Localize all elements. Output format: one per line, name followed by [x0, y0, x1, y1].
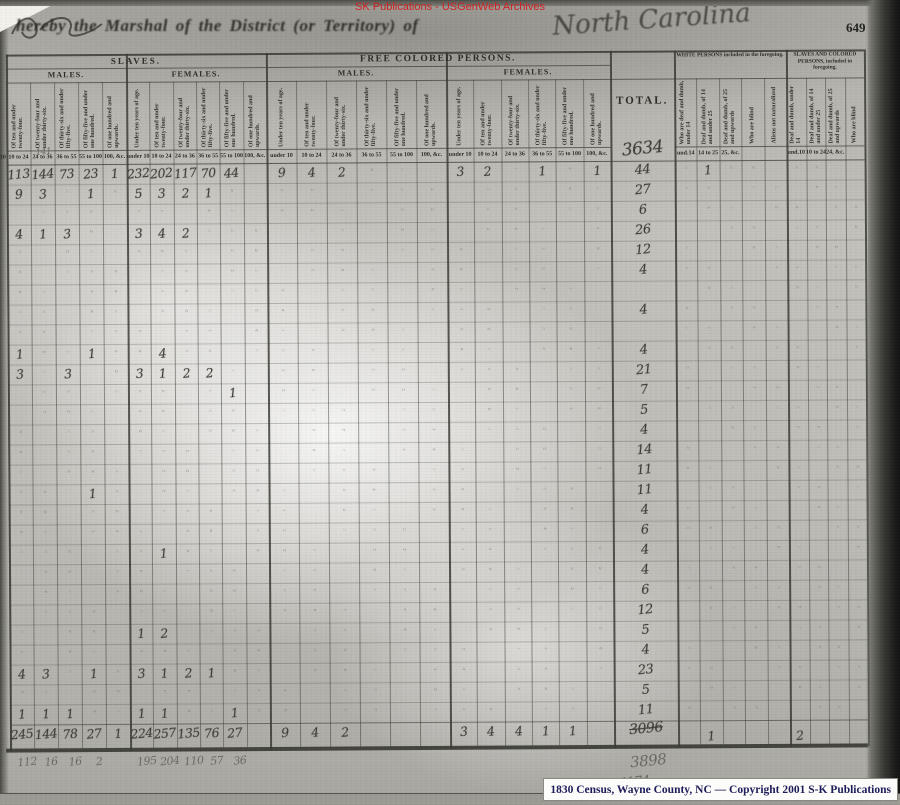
- cell-value: 3: [129, 663, 154, 685]
- column-label-text: Of fifty-five and under one hundred.: [562, 81, 576, 145]
- cell-value: 2: [326, 161, 358, 184]
- ditto-mark: ": [743, 698, 769, 722]
- column-total-value: 245: [9, 723, 35, 745]
- cell-value: 3: [7, 363, 33, 385]
- ditto-mark: ": [556, 399, 587, 424]
- ditto-mark: ": [675, 578, 701, 602]
- ditto-mark: ": [195, 221, 222, 245]
- credit-text: 1830 Census, Wayne County, NC — Copyrigh…: [550, 784, 891, 796]
- ditto-mark: ": [808, 698, 831, 722]
- ditto-mark: ": [528, 339, 559, 364]
- fc-male-column-label: Of fifty-five and under one hundred.: [387, 82, 415, 146]
- slave-female-column-label: Of fifty-five and under one hundred.: [220, 83, 242, 147]
- ditto-mark: ": [785, 218, 808, 242]
- ditto-mark: ": [764, 458, 790, 482]
- ditto-mark: ": [826, 598, 849, 622]
- column-label-text: Aliens not naturalized: [772, 87, 779, 144]
- sc-column-label: Deaf and dumb, of 14 and under 25: [807, 80, 825, 144]
- census-table: SLAVES.FREE COLORED PERSONS.MALES.FEMALE…: [0, 0, 870, 793]
- fc-female-column-label: Of thirty-six and under fifty-five.: [529, 81, 555, 145]
- cell-value: 9: [6, 183, 32, 205]
- ditto-mark: ": [719, 358, 745, 382]
- cell-value: 2: [173, 182, 198, 204]
- fc-female-column-label: Of fifty-five and under one hundred.: [556, 81, 582, 145]
- ditto-mark: ": [675, 518, 701, 542]
- column-label-text: Of one hundred and upwards.: [424, 82, 438, 146]
- ditto-mark: ": [149, 301, 176, 325]
- ditto-mark: ": [446, 359, 477, 384]
- ditto-mark: ": [741, 378, 767, 402]
- ditto-mark: ": [30, 402, 58, 426]
- column-total-value: 3: [449, 721, 478, 743]
- ditto-mark: ": [844, 338, 867, 362]
- white-age-tick: [764, 146, 786, 160]
- white-age-tick: 14 to 25: [697, 146, 719, 160]
- ditto-mark: ": [502, 479, 533, 504]
- slave-female-age-tick: under 10: [126, 150, 149, 164]
- slave-female-column-label: Of thirty-six and under fifty-five.: [197, 83, 219, 147]
- column-total-value: 257: [152, 723, 177, 745]
- ditto-mark: ": [447, 559, 478, 584]
- females-title: FEMALES.: [446, 67, 610, 77]
- ditto-mark: ": [79, 522, 107, 546]
- ditto-mark: ": [673, 178, 699, 202]
- column-label-text: Of one hundred and upwards.: [590, 81, 604, 145]
- sc-age-tick: [845, 145, 865, 159]
- ditto-mark: ": [557, 599, 588, 624]
- cell-value: 1: [57, 703, 83, 725]
- column-label-text: Of thirty-six and under fifty-five.: [59, 84, 73, 148]
- cell-value: 70: [196, 162, 221, 184]
- column-label-text: Of thirty-six and under fifty-five.: [201, 83, 215, 147]
- column-label-text: Under ten years of age.: [134, 89, 141, 148]
- ditto-mark: ": [474, 419, 505, 444]
- ditto-mark: ": [825, 398, 848, 422]
- slave-female-age-tick: 36 to 55: [196, 149, 219, 163]
- ditto-mark: ": [786, 278, 809, 302]
- slave-female-age-tick: 100, &c.: [243, 149, 266, 163]
- ditto-mark: ": [675, 458, 701, 482]
- slaves-colored-included-title: SLAVES AND COLORED PERSONS, included in …: [787, 51, 863, 71]
- ditto-mark: ": [529, 539, 560, 564]
- cell-value: 232: [126, 163, 151, 185]
- ditto-mark: ": [765, 598, 791, 622]
- fc-female-column-label: Under ten years of age.: [447, 82, 473, 146]
- sc-column-label: Deaf and dumb, under 14: [787, 80, 805, 144]
- ditto-mark: ": [804, 178, 827, 202]
- ditto-mark: ": [807, 638, 830, 662]
- column-total-value: 2: [329, 721, 361, 744]
- ditto-mark: ": [718, 298, 744, 322]
- ditto-mark: ": [785, 158, 808, 182]
- cell-value: 1: [9, 703, 35, 725]
- ditto-mark: ": [719, 418, 745, 442]
- column-total-value: 4: [299, 721, 331, 744]
- ditto-mark: ": [787, 478, 810, 502]
- column-label-text: Deaf and dumb, under 14: [789, 80, 803, 144]
- fc-male-column-label: Of twenty-four and under thirty-six.: [327, 82, 355, 146]
- column-label-text: Of twenty-four and under thirty-six.: [508, 81, 522, 145]
- ditto-mark: ": [696, 338, 722, 362]
- ditto-mark: ": [695, 198, 721, 222]
- column-total-value: 224: [129, 723, 154, 745]
- ditto-mark: ": [102, 382, 130, 406]
- ditto-mark: ": [844, 278, 867, 302]
- fc-female-column-label: Of ten and under twenty-four.: [474, 82, 500, 146]
- column-total-value: 1: [700, 725, 724, 747]
- slave-male-column-label: Of twenty-four and under thirty-six.: [31, 84, 53, 148]
- ditto-mark: ": [807, 618, 830, 642]
- ditto-mark: ": [806, 438, 829, 462]
- slave-female-column-label: Of ten and under twenty-four.: [150, 84, 172, 148]
- cell-value: 1: [152, 703, 177, 725]
- ditto-mark: ": [500, 279, 531, 304]
- white-column-label: Deaf and dumb, of 14 and under 25: [697, 80, 718, 144]
- column-label-text: Of twenty-four and under thirty-six.: [178, 83, 192, 147]
- ditto-mark: ": [742, 438, 768, 462]
- cell-value: 1: [7, 343, 33, 365]
- sc-column-label: Deaf and dumb, of 25 and upwards: [826, 79, 844, 143]
- ditto-mark: ": [806, 378, 829, 402]
- ditto-mark: ": [825, 318, 848, 342]
- ditto-mark: ": [582, 258, 613, 283]
- ditto-mark: ": [740, 238, 766, 262]
- ditto-mark: ": [764, 338, 790, 362]
- cell-value: 1: [151, 543, 176, 565]
- cell-value: 144: [30, 163, 56, 185]
- ditto-mark: ": [824, 198, 847, 222]
- ditto-mark: ": [806, 498, 829, 522]
- ditto-mark: ": [56, 662, 84, 686]
- fc-female-column-label: Of one hundred and upwards.: [584, 81, 610, 145]
- ditto-mark: ": [101, 182, 129, 206]
- column-label-text: Under ten years of age.: [278, 88, 285, 147]
- white-column-label: Deaf and dumb, of 25 and upwards: [720, 80, 741, 144]
- ditto-mark: ": [243, 341, 270, 365]
- cell-value: 1: [222, 702, 247, 724]
- white-column-label: Who are deaf and dumb, under 14: [675, 80, 696, 144]
- column-total-value: 4: [504, 720, 533, 742]
- column-label-text: Of twenty-four and under thirty-six.: [35, 84, 49, 148]
- ditto-mark: ": [807, 578, 830, 602]
- slave-female-column-label: Under ten years of age.: [127, 84, 149, 148]
- grid-hline: [6, 743, 868, 752]
- ditto-mark: ": [741, 318, 767, 342]
- ditto-mark: ": [674, 378, 700, 402]
- ditto-mark: ": [765, 538, 791, 562]
- column-total-value: 9: [269, 722, 301, 745]
- credit-box: 1830 Census, Wayne County, NC — Copyrigh…: [543, 778, 898, 801]
- ditto-mark: ": [125, 242, 152, 266]
- fc-male-column-label: Of ten and under twenty-four.: [297, 83, 325, 147]
- slave-female-age-tick: 55 to 100: [220, 149, 243, 163]
- ditto-mark: ": [475, 619, 506, 644]
- males-title: MALES.: [266, 68, 446, 78]
- ditto-mark: ": [787, 558, 810, 582]
- ditto-mark: ": [826, 518, 849, 542]
- column-label-text: Of fifty-five and under one hundred.: [224, 83, 238, 147]
- fc-male-age-tick: 100, &c.: [416, 148, 446, 162]
- ditto-mark: ": [824, 258, 847, 282]
- ditto-mark: ": [765, 658, 791, 682]
- ditto-mark: ": [698, 678, 724, 702]
- cell-value: 117: [172, 162, 197, 184]
- ditto-mark: ": [503, 679, 534, 704]
- ditto-mark: ": [697, 398, 723, 422]
- ditto-mark: ": [554, 199, 585, 224]
- sc-column-label: Who are blind: [846, 79, 864, 143]
- column-total-value: 2: [789, 725, 810, 747]
- column-label-text: Of twenty-four and under thirty-six.: [334, 82, 348, 146]
- ditto-mark: ": [245, 701, 272, 725]
- watermark-top: SK Publications - USGenWeb Archives: [0, 1, 900, 13]
- ditto-mark: ": [720, 618, 746, 642]
- ditto-mark: ": [585, 658, 616, 683]
- slave-female-column-label: Of one hundred and upwards.: [244, 83, 266, 147]
- fc-female-column-label: Of twenty-four and under thirty-six.: [502, 81, 528, 145]
- column-total-value: 76: [199, 722, 224, 744]
- ditto-mark: ": [244, 541, 271, 565]
- ditto-mark: ": [219, 281, 246, 305]
- column-label-text: Of thirty-six and under fifty-five.: [535, 81, 549, 145]
- column-label-text: Of fifty-five and under one hundred.: [83, 84, 97, 148]
- ditto-mark: ": [697, 478, 723, 502]
- total-label: TOTAL.: [610, 95, 674, 107]
- ditto-mark: ": [473, 219, 504, 244]
- ditto-mark: ": [763, 258, 789, 282]
- ditto-mark: ": [788, 618, 811, 642]
- column-label-text: Who are blind: [749, 107, 756, 144]
- ditto-mark: ": [53, 262, 81, 286]
- column-total-value: 4: [476, 720, 505, 742]
- cell-value: 1: [79, 343, 105, 365]
- column-label-text: Deaf and dumb, of 25 and upwards: [828, 79, 842, 143]
- column-label-text: Who are deaf and dumb, under 14: [679, 80, 693, 144]
- column-total-value: 135: [176, 722, 201, 744]
- column-label-text: Of one hundred and upwards.: [107, 84, 121, 148]
- cell-value: 1: [199, 662, 224, 684]
- ditto-mark: ": [196, 421, 223, 445]
- ditto-mark: ": [827, 698, 850, 722]
- ditto-mark: ": [698, 598, 724, 622]
- column-label-text: Under ten years of age.: [456, 87, 463, 146]
- pencil-total-value: 2: [81, 750, 117, 773]
- white-column-label: Who are blind: [742, 80, 763, 144]
- ditto-mark: ": [805, 298, 828, 322]
- ditto-mark: ": [583, 458, 614, 483]
- cell-value: 1: [33, 703, 59, 725]
- column-total-value: 1: [558, 720, 587, 742]
- ditto-mark: ": [743, 638, 769, 662]
- ditto-mark: ": [788, 678, 811, 702]
- ditto-mark: ": [827, 658, 850, 682]
- slave-male-age-tick: 55 to 100: [78, 150, 102, 164]
- ditto-mark: ": [698, 538, 724, 562]
- sc-age-tick: 24, &c.: [825, 145, 845, 159]
- ditto-mark: ": [673, 258, 699, 282]
- ditto-mark: ": [220, 481, 247, 505]
- females-title: FEMALES.: [126, 69, 266, 79]
- slave-male-column-label: Of one hundred and upwards.: [103, 84, 125, 148]
- ditto-mark: ": [805, 238, 828, 262]
- fc-male-column-label: Of one hundred and upwards.: [417, 82, 445, 146]
- ditto-mark: ": [676, 658, 702, 682]
- slave-male-age-tick: 100, &c.: [102, 150, 126, 164]
- census-scan: SLAVES.FREE COLORED PERSONS.MALES.FEMALE…: [0, 0, 900, 805]
- ditto-mark: ": [845, 418, 868, 442]
- pencil-total-value: 36: [223, 750, 258, 773]
- ditto-mark: ": [740, 178, 766, 202]
- slave-male-age-tick: 10 to 24: [6, 150, 30, 164]
- ditto-mark: ": [198, 621, 225, 645]
- fc-male-column-label: Of thirty-six and under fifty-five.: [357, 82, 385, 146]
- fc-female-age-tick: 36 to 55: [528, 147, 555, 161]
- column-label-text: Deaf and dumb, of 14 and under 25: [701, 80, 715, 144]
- slave-male-column-label: Of ten and under twenty-four.: [7, 84, 29, 148]
- cell-value: 113: [6, 163, 32, 185]
- slave-female-age-tick: 24 to 36: [173, 149, 196, 163]
- fc-female-age-tick: under 10: [446, 148, 473, 162]
- cell-value: 1: [528, 160, 557, 182]
- slave-female-age-tick: 10 to 24: [150, 150, 173, 164]
- ditto-mark: ": [103, 582, 131, 606]
- ditto-mark: ": [742, 518, 768, 542]
- column-label-text: Of ten and under twenty-four.: [11, 84, 25, 148]
- slave-male-column-label: Under ten years of age.: [0, 85, 5, 149]
- ditto-mark: ": [718, 218, 744, 242]
- column-label-text: Of ten and under twenty-four.: [480, 82, 494, 146]
- ditto-mark: ": [743, 578, 769, 602]
- ditto-mark: ": [720, 498, 746, 522]
- cell-value: 2: [174, 362, 199, 384]
- ditto-mark: ": [786, 358, 809, 382]
- ditto-mark: ": [721, 698, 747, 722]
- cell-value: 23: [78, 163, 104, 185]
- column-label-text: Of ten and under twenty-four.: [304, 83, 318, 147]
- page-number: 649: [846, 20, 866, 36]
- ditto-mark: ": [844, 218, 867, 242]
- ditto-mark: ": [674, 318, 700, 342]
- column-total-value: 1: [531, 720, 560, 742]
- males-title: MALES.: [6, 70, 126, 80]
- column-total-value: 1: [105, 723, 131, 745]
- ditto-mark: ": [720, 558, 746, 582]
- ditto-mark: ": [826, 458, 849, 482]
- cell-value: 1: [30, 223, 56, 245]
- cell-value: 1: [129, 703, 154, 725]
- ditto-mark: ": [174, 561, 201, 585]
- ditto-mark: ": [32, 602, 60, 626]
- ditto-mark: ": [150, 501, 177, 525]
- column-label-text: Of thirty-six and under fifty-five.: [364, 82, 378, 146]
- ditto-mark: ": [7, 542, 35, 566]
- scan-edge-right: [866, 0, 900, 805]
- column-label-text: Deaf and dumb, of 25 and upwards: [723, 80, 737, 144]
- ditto-mark: ": [718, 158, 744, 182]
- ditto-mark: ": [845, 478, 868, 502]
- ditto-mark: ": [127, 442, 154, 466]
- column-label-text: Who are blind: [851, 106, 858, 143]
- ditto-mark: ": [696, 278, 722, 302]
- slaves-title: SLAVES.: [6, 55, 266, 67]
- column-label-text: Deaf and dumb, of 14 and under 25: [809, 80, 823, 144]
- column-total-value: 27: [222, 722, 247, 744]
- column-total-value: 27: [81, 723, 107, 745]
- cell-value: 3: [446, 161, 475, 183]
- free-colored-title: FREE COLORED PERSONS.: [266, 53, 610, 65]
- pencil-grand-total: 3898: [615, 748, 681, 774]
- ditto-mark: ": [764, 398, 790, 422]
- ditto-mark: ": [763, 198, 789, 222]
- cell-value: 4: [150, 343, 175, 365]
- slave-male-column-label: Of fifty-five and under one hundred.: [79, 84, 101, 148]
- column-label-text: Of fifty-five and under one hundred.: [394, 82, 408, 146]
- fc-male-column-label: Under ten years of age.: [267, 83, 295, 147]
- slave-female-column-label: Of twenty-four and under thirty-six.: [174, 83, 196, 147]
- column-label-text: Of one hundred and upwards.: [248, 83, 262, 147]
- column-total-value: 144: [33, 723, 59, 745]
- cell-value: 202: [149, 163, 174, 185]
- ditto-mark: ": [786, 418, 809, 442]
- ditto-mark: ": [55, 462, 83, 486]
- column-total-value: 78: [57, 723, 83, 745]
- column-label-text: Of ten and under twenty-four.: [154, 84, 168, 148]
- white-included-title: WHITE PERSONS included in the foregoing.: [675, 52, 785, 59]
- white-column-label: Aliens not naturalized: [765, 80, 786, 144]
- slave-male-column-label: Of thirty-six and under fifty-five.: [55, 84, 77, 148]
